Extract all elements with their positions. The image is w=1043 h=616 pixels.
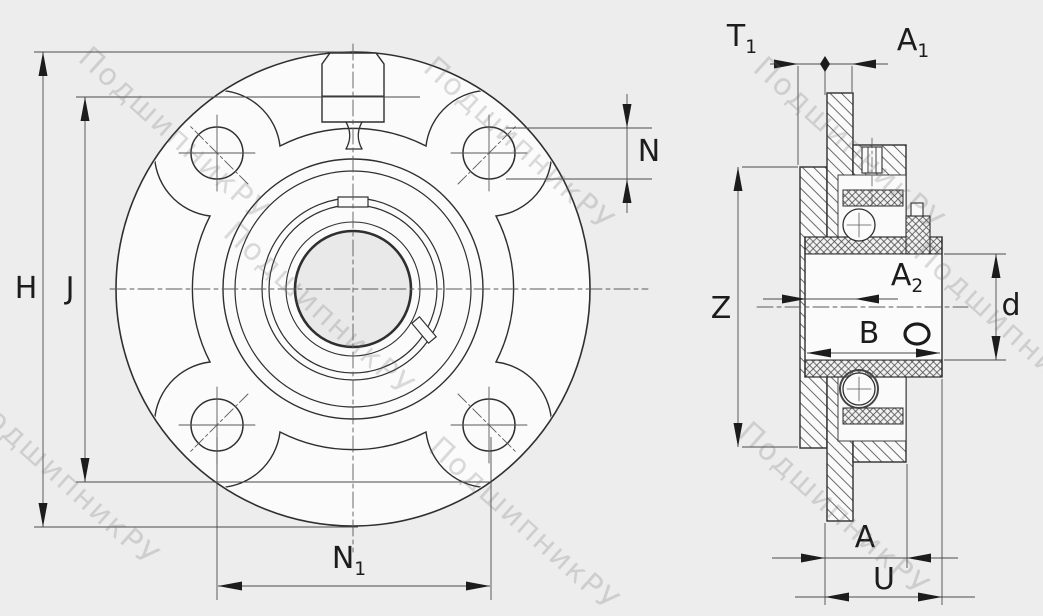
dim-label-d: d <box>1001 291 1020 321</box>
sleeve-band-bottom <box>805 360 942 377</box>
dim-label-A1: A1 <box>897 26 929 56</box>
dim-label-A2: A2 <box>891 261 923 291</box>
bearing-unit-drawing: H J N N1 T1 A1 Z A2 B d A U ПодшипникРУП… <box>0 0 1043 616</box>
side-view <box>757 93 968 521</box>
dim-label-J: J <box>66 274 75 304</box>
dim-label-U: U <box>873 565 895 595</box>
dim-label-B: B <box>859 319 880 349</box>
collar-screw <box>911 203 923 216</box>
bearing-ball-bottom <box>840 370 878 408</box>
dim-label-A: A <box>855 523 876 553</box>
dim-label-Z: Z <box>711 294 732 324</box>
dim-label-N: N <box>638 137 660 167</box>
outer-ring-top <box>843 190 903 206</box>
front-view <box>110 44 648 552</box>
dim-label-N1: N1 <box>332 544 366 574</box>
locking-collar <box>906 216 930 254</box>
drawing-canvas <box>0 0 1043 616</box>
outer-ring-bottom <box>843 408 903 424</box>
dim-label-H: H <box>15 274 38 304</box>
bearing-ball-top <box>843 209 875 241</box>
shared-dim-point <box>820 56 830 72</box>
dim-label-T1: T1 <box>727 22 757 52</box>
